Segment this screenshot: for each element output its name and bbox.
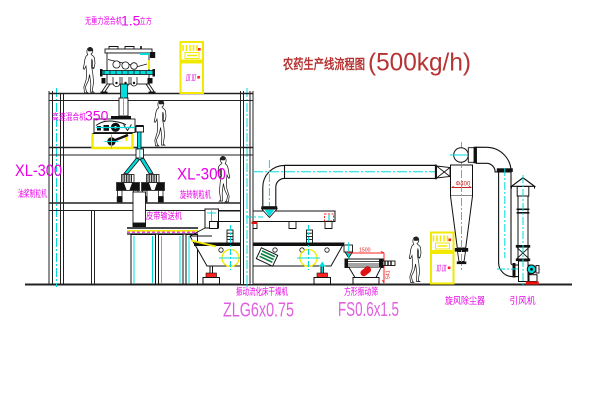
svg-text:方形振动筛: 方形振动筛 bbox=[344, 286, 378, 298]
svg-text:高速混合机: 高速混合机 bbox=[52, 111, 86, 122]
svg-text:350: 350 bbox=[85, 108, 109, 124]
svg-text:油桨制粒机: 油桨制粒机 bbox=[18, 188, 47, 200]
svg-text:旋风除尘器: 旋风除尘器 bbox=[445, 295, 485, 307]
svg-text:XL-300: XL-300 bbox=[15, 161, 62, 180]
svg-text:541: 541 bbox=[386, 270, 392, 279]
svg-text:FS0.6x1.5: FS0.6x1.5 bbox=[338, 299, 399, 321]
svg-text:振动流化床干燥机: 振动流化床干燥机 bbox=[236, 286, 288, 298]
svg-text:XL-300: XL-300 bbox=[177, 165, 226, 184]
svg-text:引风机: 引风机 bbox=[510, 295, 536, 307]
svg-text:农药生产线流程图: 农药生产线流程图 bbox=[282, 56, 365, 72]
svg-text:1.5: 1.5 bbox=[121, 13, 141, 29]
svg-text:皮带输送机: 皮带输送机 bbox=[146, 210, 182, 221]
svg-text:ZLG6x0.75: ZLG6x0.75 bbox=[223, 299, 294, 322]
svg-text:Φ400: Φ400 bbox=[456, 182, 471, 188]
svg-text:无重力混合机: 无重力混合机 bbox=[85, 15, 122, 26]
svg-text:(500kg/h): (500kg/h) bbox=[368, 49, 471, 77]
svg-text:立方: 立方 bbox=[140, 16, 153, 26]
svg-text:1500: 1500 bbox=[359, 248, 371, 254]
svg-text:旋转制粒机: 旋转制粒机 bbox=[180, 189, 211, 201]
